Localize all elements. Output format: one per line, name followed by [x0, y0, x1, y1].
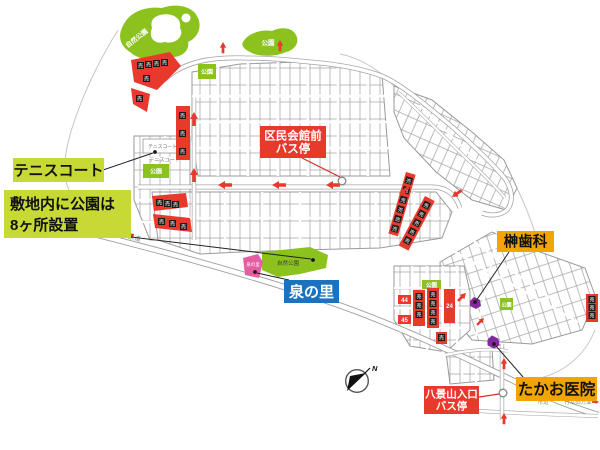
callout-parks-note: 敷地内に公園は 8ヶ所設置: [4, 190, 131, 238]
park-ne-label: 公園: [262, 38, 276, 47]
sale-marker: [158, 218, 165, 226]
callout-izumi-no-sato: 泉の里: [284, 280, 339, 303]
park-box-east-label: 公園: [501, 302, 511, 309]
tennis-court-box-label: テニスコート: [148, 144, 177, 150]
callout-dot: [253, 270, 257, 274]
park-box-west-label: 公園: [150, 168, 162, 176]
izumi-area: 泉の里: [243, 254, 263, 278]
direction-arrow: [220, 42, 226, 53]
sale-marker: [143, 75, 150, 83]
callout-dot: [153, 150, 157, 154]
sale-marker: [430, 300, 437, 308]
sale-marker: [179, 130, 186, 138]
callout-kumin-bus-line1: 区民会館前: [264, 129, 322, 143]
tennis-court-text: テニスコート: [149, 157, 180, 164]
sale-marker: [438, 334, 445, 342]
sale-marker: [430, 318, 437, 326]
sale-marker: [169, 220, 176, 228]
callout-parks-note-line1: 敷地内に公園は: [10, 195, 115, 213]
sale-marker: [430, 309, 437, 317]
callout-dot: [473, 300, 477, 304]
sale-marker: [589, 304, 596, 312]
callout-hakkeiyama-bus-line2: バス停: [436, 400, 468, 413]
sale-marker: [136, 95, 143, 103]
sale-marker: [164, 200, 171, 208]
nature-park-nw-clearing: [151, 14, 181, 42]
sale-marker: [179, 112, 186, 120]
compass-north-label: N: [372, 364, 378, 373]
grid-main: [192, 62, 390, 176]
sale-marker: [179, 148, 186, 156]
sale-marker: [430, 291, 437, 299]
sale-marker: [416, 311, 423, 319]
callout-parks-note-line2: 8ヶ所設置: [10, 216, 78, 234]
sale-marker: [180, 223, 187, 231]
park-box-se-label: 公園: [426, 281, 438, 289]
sale-marker: [145, 61, 152, 69]
sale-marker: [589, 312, 596, 320]
callout-hakkeiyama-bus: 八景山入口 バス停: [424, 386, 479, 414]
compass-icon: N: [346, 364, 378, 392]
lot-number-24: 24: [446, 304, 453, 310]
izumi-area-label: 泉の里: [246, 261, 260, 267]
callout-sakaki-dental: 榊歯科: [497, 231, 554, 252]
bus-stop-hakkeiyama: [499, 389, 507, 397]
sale-marker: [416, 293, 423, 301]
lot-number-45: 45: [401, 318, 408, 324]
sale-marker: [161, 59, 168, 67]
callout-tennis-court: テニスコート: [13, 158, 104, 182]
lot-grids: [134, 62, 596, 384]
sale-marker: [172, 201, 179, 209]
callout-line-hakkeiyama-bus: [479, 394, 499, 397]
callout-dot: [492, 342, 496, 346]
callout-kumin-kaikan-bus: 区民会館前 バス停: [260, 126, 326, 158]
callout-takao-clinic: たかお医院: [516, 377, 597, 401]
callout-dot: [311, 258, 315, 262]
residential-map: 売: [0, 0, 600, 450]
callout-kumin-bus-line2: バス停: [276, 142, 311, 156]
sale-marker: [156, 199, 163, 207]
callout-takao-clinic-label: たかお医院: [518, 380, 596, 399]
sale-marker: [416, 302, 423, 310]
sale-marker: [137, 62, 144, 70]
park-box-grid-label: 公園: [201, 68, 213, 76]
sale-marker: [153, 60, 160, 68]
bus-stop-kumin-kaikan: [338, 177, 346, 185]
callout-izumi-no-sato-label: 泉の里: [288, 283, 334, 301]
nature-park-center-label: 自然公園: [277, 259, 300, 267]
nature-park-nw-pond: [182, 14, 191, 23]
callout-sakaki-dental-label: 榊歯科: [504, 233, 548, 251]
lot-number-44: 44: [401, 298, 408, 304]
callout-tennis-court-label: テニスコート: [13, 163, 103, 180]
callout-hakkeiyama-bus-line1: 八景山入口: [424, 388, 478, 401]
map-canvas: 売: [0, 0, 600, 450]
sale-marker: [589, 296, 596, 304]
